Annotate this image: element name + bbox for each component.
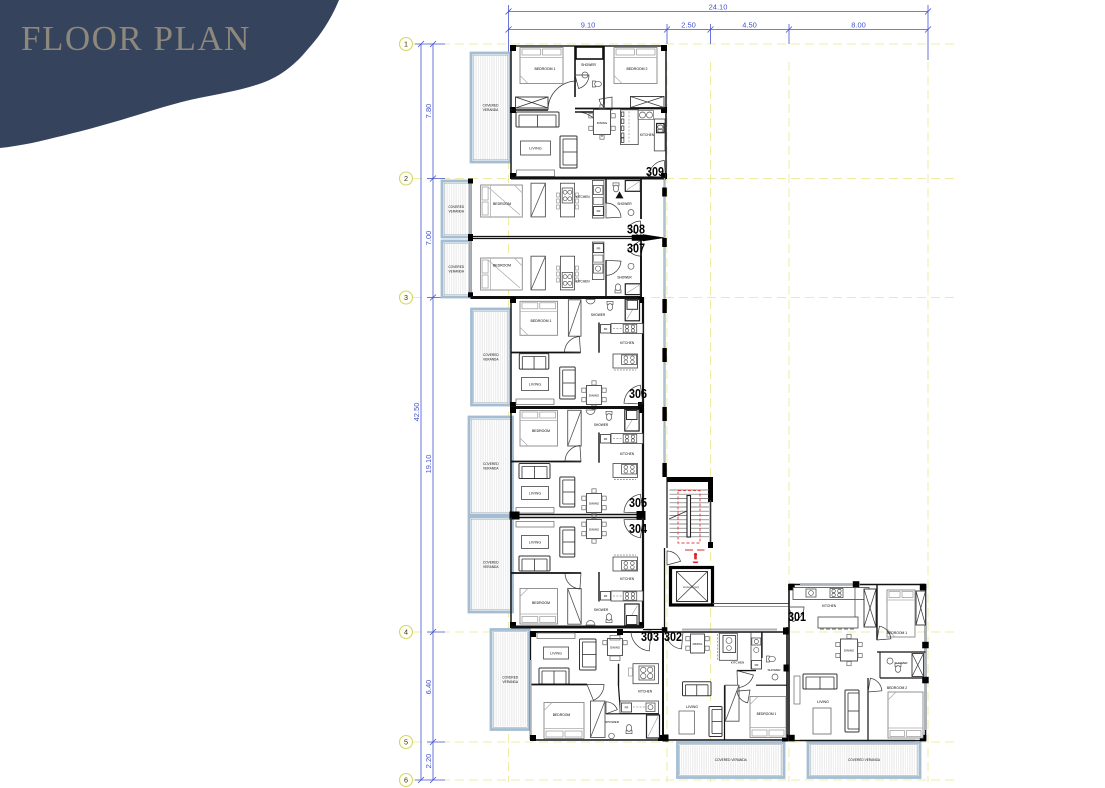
svg-text:KITCHEN: KITCHEN (822, 604, 837, 608)
svg-text:LIVING: LIVING (550, 651, 562, 655)
svg-text:COVERED: COVERED (483, 561, 499, 565)
svg-text:3: 3 (404, 293, 408, 302)
svg-text:COVERED: COVERED (483, 462, 499, 466)
svg-text:42.50: 42.50 (412, 403, 421, 422)
svg-text:FR: FR (597, 209, 601, 213)
svg-text:DINING: DINING (693, 642, 703, 646)
svg-text:DINING: DINING (610, 646, 620, 650)
svg-text:LIVING: LIVING (529, 146, 541, 150)
svg-text:DINING: DINING (597, 121, 608, 125)
svg-text:5: 5 (404, 738, 408, 747)
svg-text:BEDROOM: BEDROOM (532, 601, 550, 605)
svg-text:ανελκυστήρας: ανελκυστήρας (683, 585, 700, 589)
svg-text:303: 303 (641, 630, 659, 644)
svg-text:DINING: DINING (589, 528, 600, 532)
svg-text:BEDROOM: BEDROOM (493, 264, 511, 268)
svg-text:2.20: 2.20 (424, 754, 433, 769)
svg-text:VERANDA: VERANDA (483, 467, 499, 471)
svg-text:1: 1 (404, 40, 408, 49)
svg-text:4: 4 (404, 628, 408, 637)
svg-text:24.10: 24.10 (709, 3, 728, 12)
svg-text:306: 306 (629, 387, 647, 401)
svg-text:301: 301 (788, 610, 806, 624)
svg-text:KITCHEN: KITCHEN (576, 195, 591, 199)
svg-text:FR: FR (604, 437, 608, 441)
svg-text:BEDROOM 1: BEDROOM 1 (757, 712, 777, 716)
svg-text:SHOWER: SHOWER (767, 668, 780, 672)
svg-text:308: 308 (627, 223, 645, 237)
svg-text:BEDROOM: BEDROOM (532, 429, 550, 433)
svg-text:304: 304 (629, 522, 647, 536)
svg-text:FLOOR PLAN: FLOOR PLAN (21, 19, 251, 58)
svg-text:KITCHEN: KITCHEN (640, 133, 655, 137)
svg-text:305: 305 (629, 496, 647, 510)
svg-text:VERANDA: VERANDA (483, 565, 499, 569)
svg-text:302: 302 (664, 630, 682, 644)
svg-text:2: 2 (404, 174, 408, 183)
svg-text:DINING: DINING (844, 649, 855, 653)
svg-text:SHOWER: SHOWER (594, 608, 609, 612)
svg-text:BEDROOM: BEDROOM (493, 202, 511, 206)
svg-text:2.50: 2.50 (681, 21, 696, 30)
svg-text:FR: FR (604, 327, 608, 331)
svg-text:7.80: 7.80 (424, 104, 433, 119)
svg-text:BEDROOM 1: BEDROOM 1 (530, 319, 551, 323)
svg-text:KITCHEN: KITCHEN (576, 280, 591, 284)
svg-text:LIVING: LIVING (529, 382, 541, 386)
svg-text:COVERED: COVERED (448, 205, 464, 209)
svg-text:COVERED: COVERED (483, 104, 499, 108)
svg-text:8.00: 8.00 (851, 21, 866, 30)
svg-text:LIVING: LIVING (686, 705, 698, 709)
svg-text:9.10: 9.10 (581, 21, 596, 30)
svg-text:COVERED VERANDA: COVERED VERANDA (848, 758, 881, 762)
svg-text:SHOWER: SHOWER (605, 720, 620, 724)
svg-text:FR: FR (755, 663, 759, 667)
svg-text:VERANDA: VERANDA (449, 270, 465, 274)
svg-text:LIVING: LIVING (817, 700, 829, 704)
svg-text:BEDROOM 1: BEDROOM 1 (534, 67, 555, 71)
svg-text:SHOWER: SHOWER (591, 313, 606, 317)
svg-text:SHOWER: SHOWER (617, 202, 632, 206)
svg-text:KITCHEN: KITCHEN (620, 577, 635, 581)
svg-text:COVERED VERANDA: COVERED VERANDA (715, 758, 748, 762)
svg-text:SHOWER: SHOWER (617, 275, 632, 279)
svg-text:COVERED: COVERED (502, 676, 518, 680)
svg-text:VERANDA: VERANDA (449, 210, 465, 214)
svg-text:VERANDA: VERANDA (483, 358, 499, 362)
svg-text:KITCHEN: KITCHEN (638, 690, 653, 694)
svg-text:BEDROOM: BEDROOM (553, 713, 571, 717)
svg-text:COVERED: COVERED (448, 265, 464, 269)
svg-text:KITCHEN: KITCHEN (731, 661, 745, 665)
svg-text:LIVING: LIVING (529, 540, 541, 544)
svg-text:SHOWER: SHOWER (594, 423, 609, 427)
svg-text:BEDROOM 2: BEDROOM 2 (887, 686, 907, 690)
svg-text:DINING: DINING (589, 394, 600, 398)
svg-text:BEDROOM 2: BEDROOM 2 (626, 67, 647, 71)
svg-text:FR: FR (604, 594, 608, 598)
svg-text:307: 307 (627, 242, 645, 256)
svg-text:KITCHEN: KITCHEN (620, 452, 635, 456)
svg-text:FR: FR (597, 246, 601, 250)
svg-text:6: 6 (404, 776, 408, 785)
svg-text:DINING: DINING (589, 502, 600, 506)
svg-text:6.40: 6.40 (424, 680, 433, 695)
svg-text:KITCHEN: KITCHEN (620, 341, 635, 345)
svg-text:19.10: 19.10 (424, 455, 433, 474)
svg-text:VERANDA: VERANDA (503, 680, 519, 684)
svg-text:VERANDA: VERANDA (483, 108, 499, 112)
svg-text:FR: FR (625, 706, 629, 710)
svg-text:LIVING: LIVING (529, 491, 541, 495)
svg-text:SHOWER: SHOWER (581, 63, 596, 67)
svg-text:4.50: 4.50 (742, 21, 757, 30)
svg-text:7.00: 7.00 (424, 231, 433, 246)
svg-text:COVERED: COVERED (483, 353, 499, 357)
